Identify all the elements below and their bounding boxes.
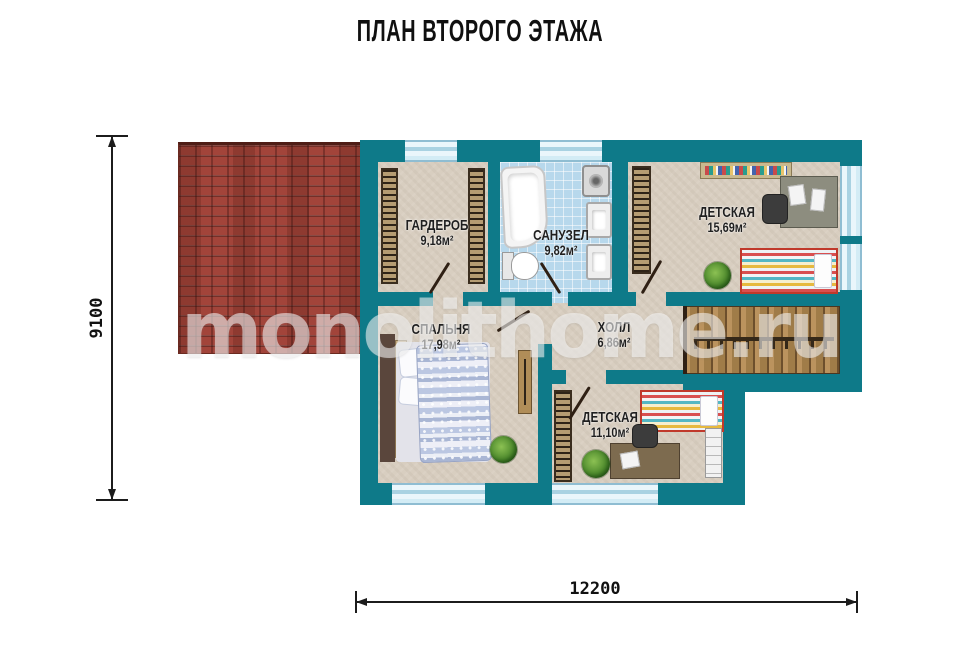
double-bed: [396, 342, 490, 462]
dresser: [518, 350, 532, 414]
floor-plan-canvas: ПЛАН ВТОРОГО ЭТАЖА: [0, 0, 960, 669]
plant: [490, 436, 517, 463]
stairs-railing-posts: [694, 341, 834, 349]
wall-top-rooms-a: [378, 292, 433, 306]
dimension-arrow-down: [108, 489, 116, 500]
bed-pillow: [700, 396, 718, 426]
dimension-arrow-right: [846, 598, 857, 606]
kids1-bookshelf: [700, 162, 792, 179]
room-name: СПАЛЬНЯ: [412, 322, 471, 337]
kids1-bed: [740, 248, 838, 294]
dimension-line-horizontal: [356, 601, 857, 603]
kids1-chair: [762, 194, 788, 224]
stairs-entry-rail: [683, 306, 687, 374]
duvet: [416, 343, 492, 463]
window-bottom-kids2: [552, 483, 658, 505]
dimension-label-horizontal: 12200: [525, 579, 665, 599]
window-bottom-bedroom: [392, 483, 485, 505]
room-label-kids2: ДЕТСКАЯ11,10м²: [574, 410, 645, 442]
page-title: ПЛАН ВТОРОГО ЭТАЖА: [357, 13, 603, 49]
wall-bedroom-joint: [538, 292, 552, 306]
kids2-wardrobe: [554, 390, 572, 482]
wardrobe-cabinet-left: [381, 168, 398, 284]
plant: [704, 262, 731, 289]
room-area: 9,18м²: [406, 233, 469, 247]
bed-pillow: [814, 254, 832, 288]
dimension-arrow-up: [108, 136, 116, 147]
room-area: 17,98м²: [412, 337, 471, 351]
room-label-wardrobe: ГАРДЕРОБ9,18м²: [397, 218, 477, 250]
kids1-desk: [780, 176, 838, 228]
room-label-bedroom: СПАЛЬНЯ17,98м²: [403, 322, 479, 354]
books: [705, 166, 787, 175]
desk-paper: [620, 451, 641, 470]
room-area: 6,86м²: [598, 335, 631, 349]
roof-tiles: [178, 142, 362, 354]
window-right-kids1-a: [840, 166, 862, 236]
window-top-bathroom: [540, 140, 602, 162]
room-area: 15,69м²: [699, 220, 755, 234]
kids1-wardrobe: [632, 166, 651, 274]
wall-bathroom-kids1: [612, 162, 628, 303]
washing-machine: [582, 165, 610, 197]
washing-machine-drum: [589, 174, 603, 188]
dimension-line-vertical: [111, 136, 113, 500]
room-name: ГАРДЕРОБ: [406, 218, 469, 233]
wall-top-rooms-c: [568, 292, 628, 306]
kids2-desk: [610, 443, 680, 479]
wall-bedroom-hall: [538, 344, 552, 505]
dimension-label-vertical: 9100: [87, 283, 107, 353]
window-top-wardrobe: [405, 140, 457, 162]
room-label-kids1: ДЕТСКАЯ15,69м²: [691, 205, 762, 237]
window-right-kids1-b: [840, 244, 862, 290]
outside-area: [745, 392, 862, 505]
wall-kids1-stub: [628, 292, 636, 306]
dimension-arrow-left: [356, 598, 367, 606]
plant: [582, 450, 610, 478]
sink-basin: [592, 210, 606, 230]
dresser-handle: [524, 359, 526, 405]
room-name: ДЕТСКАЯ: [699, 205, 755, 220]
wall-right-lower: [723, 392, 745, 505]
kids2-shelf: [705, 428, 722, 478]
wall-kids1-stairs: [666, 292, 840, 306]
room-name: ДЕТСКАЯ: [582, 410, 638, 425]
room-area: 9,82м²: [533, 243, 589, 257]
room-label-bathroom: САНУЗЕЛ9,82м²: [525, 228, 596, 260]
room-name: ХОЛЛ: [598, 320, 631, 335]
room-label-hall: ХОЛЛ6,86м²: [593, 320, 635, 352]
room-area: 11,10м²: [582, 425, 638, 439]
wall-hall-kids2-b: [606, 370, 683, 384]
wall-top-rooms-b: [463, 292, 538, 306]
desk-paper: [810, 188, 826, 211]
wall-left: [360, 140, 378, 505]
room-name: САНУЗЕЛ: [533, 228, 589, 243]
desk-paper: [788, 184, 807, 206]
wall-wardrobe-bathroom: [488, 162, 500, 303]
bed-headboard: [380, 334, 395, 462]
wall-hall-kids2-a: [552, 370, 566, 384]
